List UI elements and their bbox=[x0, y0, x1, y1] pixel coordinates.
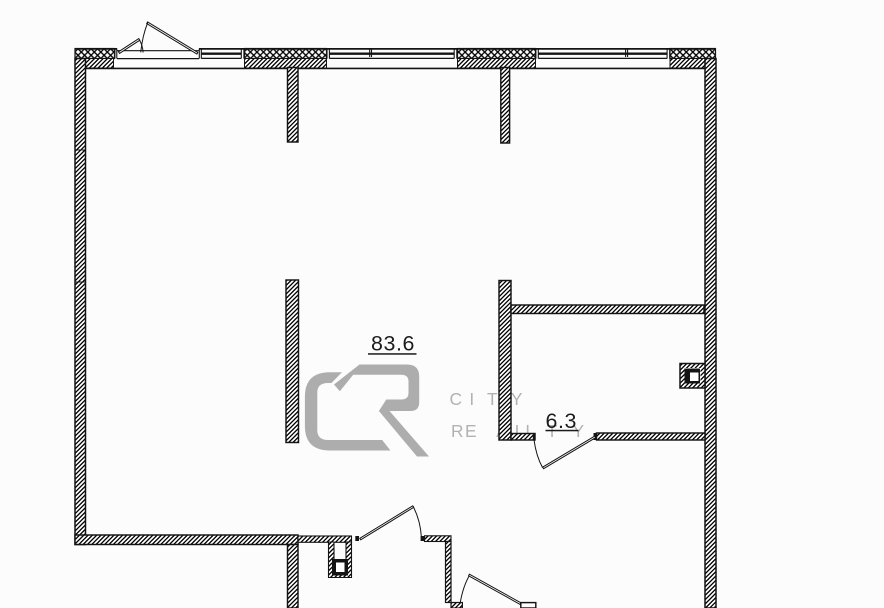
svg-text:Y: Y bbox=[511, 389, 523, 409]
svg-text:E: E bbox=[465, 421, 477, 441]
svg-text:T: T bbox=[487, 389, 498, 409]
svg-text:6.3: 6.3 bbox=[546, 409, 578, 433]
svg-text:R: R bbox=[451, 421, 463, 441]
svg-text:I: I bbox=[469, 389, 474, 409]
svg-text:C: C bbox=[449, 389, 461, 409]
svg-text:83.6: 83.6 bbox=[371, 331, 415, 355]
